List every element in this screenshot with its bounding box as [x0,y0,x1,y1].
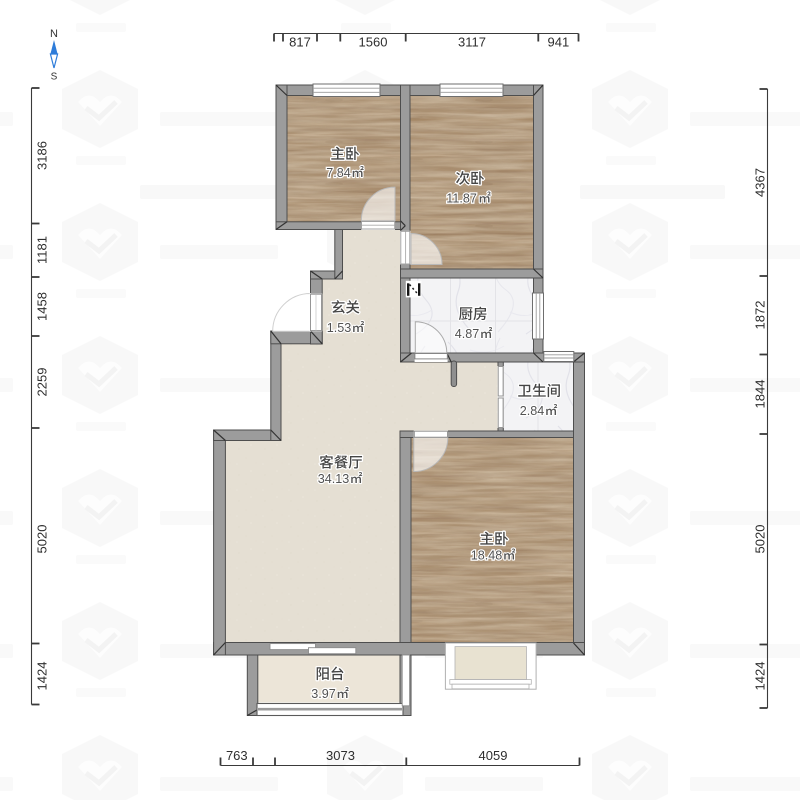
svg-text:5020: 5020 [753,525,768,554]
svg-text:N: N [50,28,58,40]
svg-text:1844: 1844 [753,380,768,409]
svg-text:1181: 1181 [35,236,50,264]
svg-text:1458: 1458 [35,292,50,321]
svg-text:1.53: 1.53 [327,321,352,335]
svg-text:941: 941 [548,35,570,50]
svg-text:1424: 1424 [753,662,768,691]
svg-text:S: S [51,72,58,83]
svg-text:11.87: 11.87 [446,192,477,206]
svg-text:4.87: 4.87 [455,327,480,341]
svg-text:1424: 1424 [35,662,50,691]
svg-text:2259: 2259 [35,368,50,397]
svg-text:7.84: 7.84 [326,166,351,180]
svg-text:2.84: 2.84 [520,404,545,418]
svg-text:5020: 5020 [35,525,50,554]
svg-text:817: 817 [289,35,311,50]
svg-text:763: 763 [226,748,248,763]
svg-text:1872: 1872 [753,301,768,330]
svg-text:3117: 3117 [458,35,486,50]
svg-text:4367: 4367 [753,168,768,197]
svg-text:3.97: 3.97 [311,687,336,701]
svg-text:3186: 3186 [35,141,50,170]
svg-text:1560: 1560 [359,35,388,50]
svg-text:4059: 4059 [479,748,508,763]
svg-text:3073: 3073 [326,748,355,763]
svg-text:18.48: 18.48 [471,549,503,563]
svg-text:34.13: 34.13 [318,472,350,486]
